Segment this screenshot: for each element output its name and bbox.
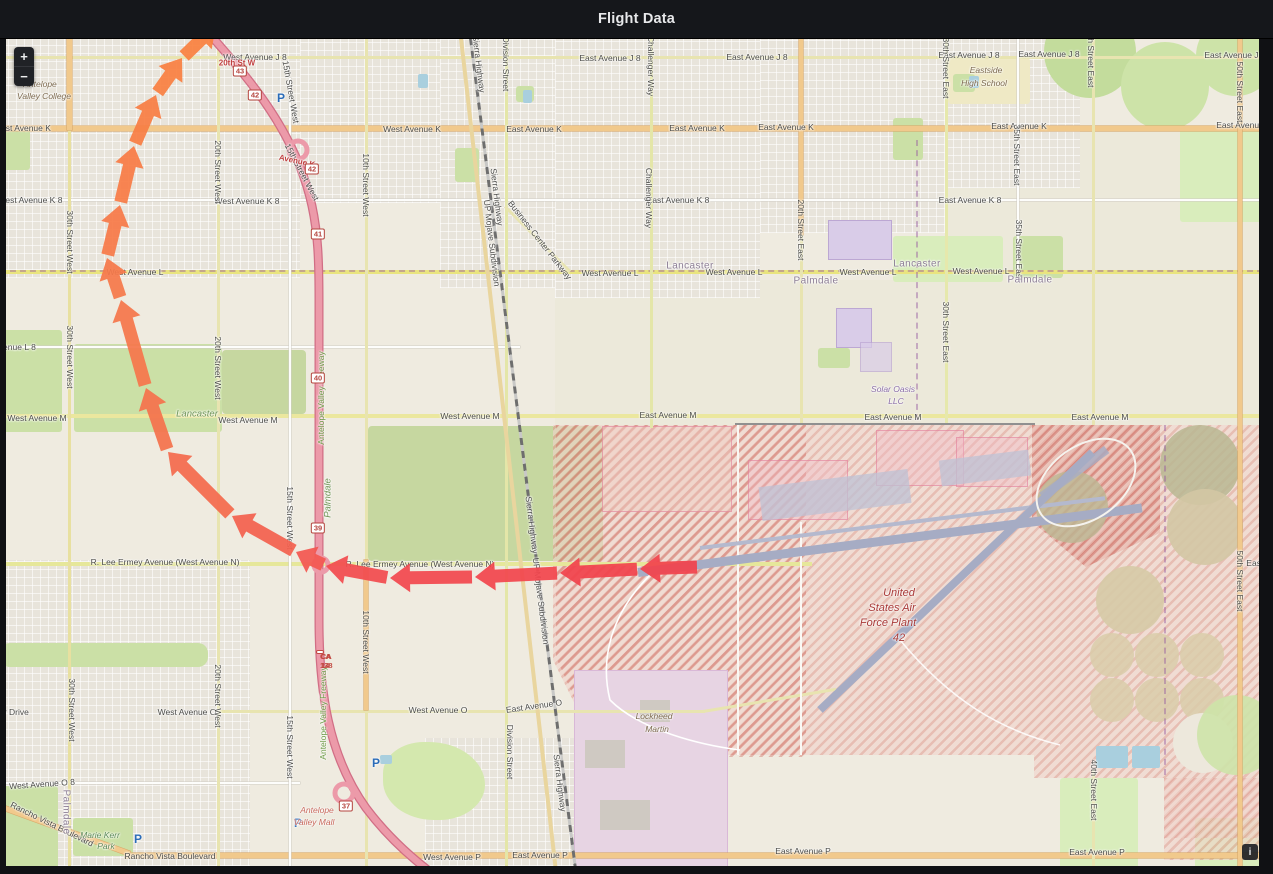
map-label: R. Lee Ermey Avenue (West Avenue N) — [91, 557, 240, 567]
map-canvas[interactable]: West Avenue J 8East Avenue J 8East Avenu… — [0, 0, 1273, 874]
map-label: East Avenue K — [669, 123, 725, 133]
highway-exit-shield: 40 — [311, 373, 325, 384]
map-label: East Avenue M — [1071, 412, 1128, 422]
map-labels-layer: West Avenue J 8East Avenue J 8East Avenu… — [0, 0, 1273, 874]
map-label: R. Lee Ermey Avenue (West Avenue N) — [346, 559, 495, 569]
map-label: 30th Street East — [941, 302, 951, 363]
map-label: Antelope Valley Freeway — [318, 666, 328, 759]
map-label: West Avenue P — [423, 852, 481, 862]
map-label: Business Center Parkway — [506, 199, 574, 282]
map-label: Martin — [645, 724, 669, 734]
panel-frame-bottom — [0, 866, 1273, 874]
map-label: West Avenue L — [107, 267, 164, 277]
map-label: 50th Street East — [1235, 551, 1245, 612]
panel: West Avenue J 8East Avenue J 8East Avenu… — [0, 0, 1273, 874]
parking-icon: P — [277, 91, 285, 105]
map-label: Lockheed — [636, 711, 673, 721]
map-label: Palmdale — [323, 478, 334, 518]
map-label: Rancho Vista Boulevard — [124, 851, 215, 861]
map-label: 20th Street West — [213, 140, 223, 203]
parking-icon: P — [372, 756, 380, 770]
map-label: East Avenue J 8 — [1204, 50, 1265, 60]
map-label: Challenger Way — [644, 168, 654, 228]
map-label: West Avenue K — [383, 124, 441, 134]
map-label: East Avenue M — [639, 410, 696, 420]
map-label: 20th Street West — [213, 336, 223, 399]
map-label: East Avenue P — [512, 850, 568, 860]
panel-title: Flight Data — [598, 11, 675, 27]
map-label: West Avenue K 8 — [0, 195, 62, 205]
zoom-in-button[interactable]: + — [14, 47, 34, 66]
map-label: Lancaster — [893, 259, 941, 270]
map-label: Valley College — [17, 91, 71, 101]
map-label: West Avenue L — [953, 266, 1010, 276]
map-label: West Avenue M — [440, 411, 499, 421]
map-label: West Avenue K 8 — [215, 196, 280, 206]
map-label: East Avenue K — [758, 122, 814, 132]
map-label: 30th Street West — [65, 325, 75, 388]
map-label: Challenger Way — [646, 36, 656, 96]
map-label: 20th Street East — [796, 200, 806, 261]
map-label: Marie Kerr — [80, 830, 120, 840]
panel-header[interactable]: Flight Data — [0, 0, 1273, 39]
map-label: Eastside — [970, 65, 1003, 75]
map-label: West Avenue K — [0, 123, 51, 133]
map-label: East Avenue K 8 — [939, 195, 1002, 205]
map-label: Palmdale — [794, 276, 839, 287]
map-label: East Avenue K 8 — [647, 195, 710, 205]
map-label: West Avenue O — [158, 707, 217, 717]
highway-exit-shield: 42 — [305, 164, 319, 175]
map-label: West Avenue L — [582, 268, 639, 278]
map-label: East Avenue J 8 — [726, 52, 787, 62]
map-label: East Avenue K — [506, 124, 562, 134]
map-label: 10th Street West — [361, 610, 371, 673]
highway-exit-shield: 43 — [233, 66, 247, 77]
map-label: Antelope Valley Freeway — [316, 351, 326, 444]
map-label: UP Mojave Subdivision — [531, 557, 552, 645]
highway-exit-shield: 37 — [339, 801, 353, 812]
map-label: Palmdale — [1008, 275, 1053, 286]
map-label: Valley Mall — [294, 817, 335, 827]
map-label: High School — [961, 78, 1007, 88]
map-label: 30th Street East — [941, 38, 951, 99]
map-label: 20th Street West — [213, 664, 223, 727]
map-label: 15th Street West — [285, 486, 295, 549]
map-label: United — [883, 587, 915, 599]
map-label: Solar Oasis — [871, 384, 915, 394]
map-label: East Avenue M — [864, 412, 921, 422]
panel-frame-left — [0, 38, 6, 874]
map-label: Lancaster — [176, 409, 218, 420]
map-label: Rancho Vista Boulevard — [9, 800, 95, 849]
map-label: LLC — [888, 396, 904, 406]
map-label: East Avenue J 8 — [1018, 49, 1079, 59]
map-label: Antelope — [300, 805, 334, 815]
map-label: Sierra Highway — [471, 35, 488, 93]
map-label: 10th Street West — [361, 153, 371, 216]
panel-frame-right — [1259, 38, 1273, 874]
map-label: 42 — [893, 632, 905, 644]
map-label: Sierra Highway — [552, 754, 569, 812]
map-label: Force Plant — [860, 617, 916, 629]
map-label: Division Street — [501, 37, 511, 92]
map-label: West Avenue L — [840, 267, 897, 277]
parking-icon: P — [134, 832, 142, 846]
map-label: West Avenue M — [7, 413, 66, 423]
map-label: Park — [97, 841, 114, 851]
highway-exit-shield: 42 — [248, 90, 262, 101]
map-label: 30th Street West — [67, 678, 77, 741]
ca-route-shield: CA 14CA 138 — [316, 650, 324, 654]
map-label: Lancaster — [666, 261, 714, 272]
map-label: Division Street — [505, 725, 515, 780]
map-label: 35th Street East — [1012, 125, 1022, 186]
map-label: 30th Street West — [65, 210, 75, 273]
highway-exit-shield: 41 — [311, 229, 325, 240]
map-zoom-control: + − — [14, 47, 34, 86]
map-label: East Avenue O — [505, 697, 562, 715]
highway-exit-shield: 39 — [311, 523, 325, 534]
attribution-info-button[interactable]: i — [1242, 844, 1258, 860]
map-label: Palmdale — [61, 790, 72, 835]
map-label: States Air — [868, 602, 915, 614]
map-label: 35th Street East — [1014, 220, 1024, 281]
map-label: East Avenue P — [775, 846, 831, 856]
map-label: 15th Street West — [285, 715, 295, 778]
map-label: West Avenue O — [409, 705, 468, 715]
map-label: East Avenue J 8 — [579, 53, 640, 63]
zoom-out-button[interactable]: − — [14, 67, 34, 86]
map-label: 50th Street East — [1235, 62, 1245, 123]
map-label: West Avenue M — [218, 415, 277, 425]
map-label: 40th Street East — [1089, 760, 1099, 821]
map-label: Sierra Highway — [524, 496, 541, 554]
map-label: East Avenue P — [1069, 847, 1125, 857]
